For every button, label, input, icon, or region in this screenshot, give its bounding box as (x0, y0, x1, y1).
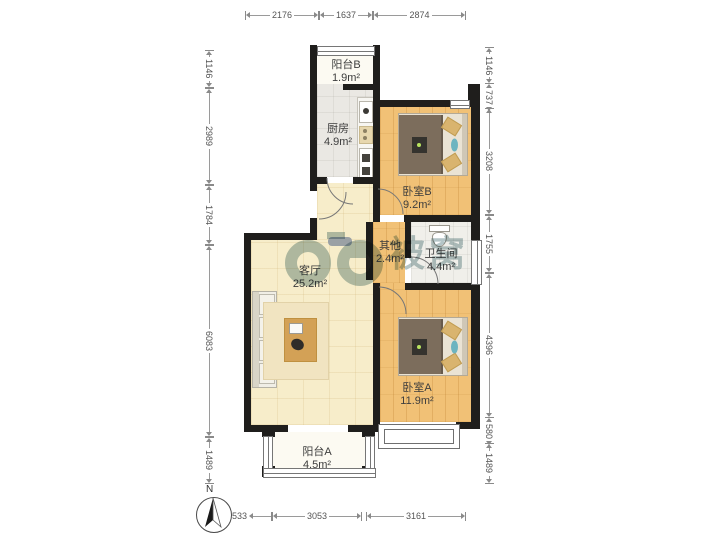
dim-top-1: 1637 (319, 8, 373, 22)
wall (310, 177, 327, 184)
dim-right-4: 4396 (482, 273, 496, 418)
room-name: 厨房 (303, 123, 373, 136)
bay-window-inner (384, 429, 454, 444)
room-area: 4.4m² (406, 261, 476, 274)
dim-right-5: 580 (482, 418, 496, 443)
bed-bedroom-b (398, 113, 468, 176)
toilet-tank (429, 225, 450, 232)
toilet-bowl (432, 232, 447, 247)
floor-doorway-bedroom-a (380, 283, 405, 290)
window (317, 46, 375, 56)
room-area: 25.2m² (275, 278, 345, 291)
entry-mat (328, 237, 352, 246)
floor-hallway (317, 183, 373, 240)
room-name: 卧室A (382, 382, 452, 395)
room-area: 4.5m² (282, 459, 352, 472)
window (365, 436, 375, 469)
room-name: 阳台A (282, 446, 352, 459)
floor-plan-canvas: 阳台B 1.9m² 厨房 4.9m² 卧室B 9.2m² 其他 2.4m² 卫生… (0, 0, 720, 532)
compass-north-label: N (206, 484, 213, 495)
oven-dial (362, 167, 370, 175)
dim-left-0: 1146 (202, 50, 216, 88)
wall (404, 215, 480, 222)
room-label-living-room: 客厅 25.2m² (275, 265, 345, 291)
wall (405, 283, 480, 290)
room-name: 卧室B (382, 186, 452, 199)
pillow (441, 116, 462, 136)
dim-left-3: 6083 (202, 245, 216, 437)
oven-icon (359, 148, 373, 180)
room-area: 4.9m² (303, 136, 373, 149)
toilet-icon (429, 225, 450, 248)
dim-bottom-1: 3053 (272, 509, 362, 523)
coffee-table-tray (289, 323, 303, 334)
dim-right-6: 1489 (482, 443, 496, 484)
room-label-bedroom-a: 卧室A 11.9m² (382, 382, 452, 408)
pillow (441, 320, 462, 340)
faucet-icon (363, 108, 369, 114)
bedside-tray (412, 137, 427, 153)
dim-right-2: 3208 (482, 108, 496, 215)
dim-right-0: 1146 (482, 47, 496, 84)
accent-pillow (451, 138, 458, 151)
dim-left-1: 2989 (202, 88, 216, 185)
room-label-bedroom-b: 卧室B 9.2m² (382, 186, 452, 212)
dim-left-2: 1784 (202, 185, 216, 245)
bedside-tray (412, 339, 427, 355)
dim-top-2: 2874 (373, 8, 466, 22)
room-name: 客厅 (275, 265, 345, 278)
room-area: 1.9m² (311, 72, 381, 85)
window (450, 100, 470, 109)
dim-right-1: 737 (482, 84, 496, 108)
room-label-bathroom: 卫生间 4.4m² (406, 248, 476, 274)
wall (244, 233, 251, 432)
room-name: 卫生间 (406, 248, 476, 261)
window (263, 436, 273, 469)
dim-bottom-0: 533 (230, 509, 272, 523)
compass-icon (196, 497, 232, 533)
room-area: 9.2m² (382, 199, 452, 212)
wall (373, 100, 452, 107)
dim-top-0: 2176 (245, 8, 319, 22)
room-label-balcony-b: 阳台B 1.9m² (311, 59, 381, 85)
wall (373, 215, 380, 222)
pillow (441, 352, 462, 372)
dim-bottom-2: 3161 (366, 509, 466, 523)
bed-bedroom-a (398, 317, 468, 376)
wall (244, 233, 317, 240)
dim-right-3: 1755 (482, 215, 496, 273)
wall (471, 283, 480, 429)
room-label-kitchen: 厨房 4.9m² (303, 123, 373, 149)
accent-pillow (451, 340, 458, 353)
bed-headboard (462, 318, 467, 375)
oven-dial (362, 154, 370, 162)
wall (353, 177, 380, 184)
room-area: 11.9m² (382, 395, 452, 408)
room-name: 阳台B (311, 59, 381, 72)
dim-left-4: 1489 (202, 437, 216, 484)
bed-headboard (462, 114, 467, 175)
room-label-balcony-a: 阳台A 4.5m² (282, 446, 352, 472)
pillow (441, 152, 462, 172)
wall (373, 283, 380, 429)
